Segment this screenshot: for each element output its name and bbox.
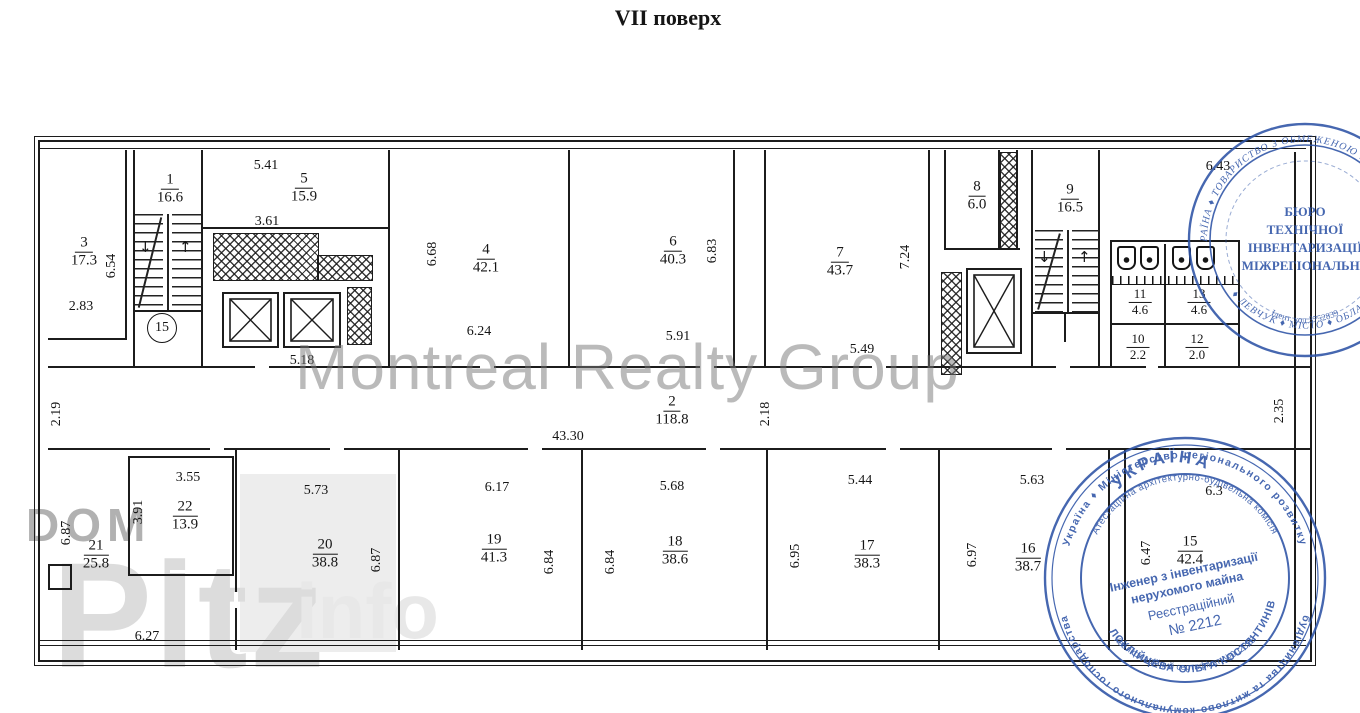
door-opening [330, 448, 344, 451]
shaft-hatch [317, 255, 373, 281]
room-label-19: 1941.3 [481, 532, 507, 567]
room-label-22: 2213.9 [172, 499, 198, 534]
room-label-8: 86.0 [968, 179, 987, 214]
dim-r4-height: 6.68 [425, 242, 441, 267]
arrow-up-icon: ↑ [1078, 250, 1091, 265]
room-number: 4 [477, 242, 495, 260]
room-area: 13.9 [172, 517, 198, 534]
floor-plan-page: VII поверх DOM Pltz info [0, 0, 1360, 713]
door-opening [234, 592, 238, 608]
stair-landing [1064, 312, 1066, 342]
room-label-4: 442.1 [473, 242, 499, 277]
wall [201, 150, 203, 368]
dim-hall-mid: 2.18 [758, 402, 774, 427]
elevator-shaft [966, 268, 1022, 354]
stair-landing [135, 310, 201, 312]
dim-r3-height: 6.54 [104, 254, 120, 279]
door-opening [1056, 366, 1070, 369]
room-area: 16.6 [157, 190, 183, 207]
wall [235, 450, 237, 650]
stair-stringer [1037, 233, 1060, 309]
room-label-18: 1838.6 [662, 534, 688, 569]
arrow-down-icon: ↓ [139, 240, 152, 255]
watermark-center: Montreal Realty Group [295, 330, 960, 404]
room-area: 6.0 [968, 197, 987, 214]
room-label-11: 114.6 [1129, 287, 1152, 317]
wall [1164, 244, 1166, 366]
room-label-3: 317.3 [71, 235, 97, 270]
dim-r5-inner: 3.61 [255, 214, 280, 230]
page-title: VII поверх [615, 5, 722, 31]
room-area: 4.6 [1129, 303, 1152, 318]
door-opening [706, 448, 720, 451]
wall [48, 338, 127, 340]
shaft-hatch [213, 233, 319, 281]
stair-stringer [138, 217, 162, 308]
room-number: 20 [313, 537, 338, 555]
room-label-9: 916.5 [1057, 182, 1083, 217]
room-area: 43.7 [827, 263, 853, 280]
dim-r22-width: 3.55 [176, 470, 201, 486]
dim-r6-height: 6.83 [705, 239, 721, 264]
wall [40, 148, 1306, 149]
room-label-10: 102.2 [1127, 332, 1150, 362]
room-number: 11 [1129, 287, 1152, 303]
door-opening [210, 448, 224, 451]
dim-hall-length: 43.30 [552, 429, 584, 445]
room-area: 42.1 [473, 260, 499, 277]
dim-r17-height: 6.95 [788, 544, 804, 569]
dim-r18-width: 5.68 [660, 479, 685, 495]
room-area: 38.8 [312, 555, 338, 572]
door-opening [528, 448, 542, 451]
dim-r7-height: 7.24 [898, 245, 914, 270]
shaft-hatch [1000, 152, 1018, 250]
room-area: 41.3 [481, 550, 507, 567]
room-area: 15.9 [291, 189, 317, 206]
wall [581, 450, 583, 650]
room-area: 118.8 [655, 412, 688, 429]
staircase: ↓ ↑ [1035, 230, 1099, 312]
dim-r19-height: 6.84 [542, 550, 558, 575]
stamp-line: МІЖРЕГІОНАЛЬНЕ [1242, 258, 1360, 273]
room-number: 22 [173, 499, 198, 517]
stair-divider-line [167, 214, 169, 310]
room-number: 19 [482, 532, 507, 550]
room-label-1: 116.6 [157, 172, 183, 207]
dim-r19-width: 6.17 [485, 480, 510, 496]
room-label-21: 2125.8 [83, 538, 109, 573]
stair-circle-marker: 15 [147, 313, 177, 343]
room-area: 38.6 [662, 552, 688, 569]
room-label-5: 515.9 [291, 171, 317, 206]
dim-r16-height: 6.97 [965, 543, 981, 568]
arrow-up-icon: ↑ [179, 240, 192, 255]
wall [766, 450, 768, 650]
room-number: 5 [295, 171, 313, 189]
room-label-7: 743.7 [827, 245, 853, 280]
room-area: 16.5 [1057, 200, 1083, 217]
stamp-engineer: Україна ♦ Міністерство регіонального роз… [1035, 428, 1335, 713]
stair-landing [1033, 312, 1099, 314]
dim-hall-right: 2.35 [1272, 399, 1288, 424]
wall [1031, 150, 1033, 368]
wall [1110, 242, 1112, 368]
room-number: 18 [663, 534, 688, 552]
stamp-line: ІНВЕНТАРИЗАЦІЇ [1248, 240, 1360, 255]
stamp-line: БЮРО [1284, 204, 1325, 219]
room-label-20: 2038.8 [312, 537, 338, 572]
room-area: 40.3 [660, 252, 686, 269]
room-number: 9 [1061, 182, 1079, 200]
pilaster [48, 564, 72, 590]
dim-r17-width: 5.44 [848, 473, 873, 489]
wall [398, 450, 400, 650]
room-area: 2.2 [1127, 348, 1150, 363]
dim-r5-width: 5.41 [254, 158, 279, 174]
arrow-down-icon: ↓ [1038, 250, 1051, 265]
room-number: 21 [84, 538, 109, 556]
toilet-icon [1117, 246, 1136, 270]
staircase: ↓ ↑ [135, 214, 201, 310]
dim-r22-height: 3.91 [131, 500, 147, 525]
door-opening [255, 366, 269, 369]
stamp-line: ТЕХНІЧНОЇ [1267, 222, 1344, 237]
room-area: 25.8 [83, 556, 109, 573]
dim-r18-height: 6.84 [603, 550, 619, 575]
room-area: 38.3 [854, 556, 880, 573]
door-opening [886, 448, 900, 451]
room-number: 6 [664, 234, 682, 252]
room-number: 17 [855, 538, 880, 556]
dim-r21-width: 6.27 [135, 629, 160, 645]
wall [203, 227, 390, 229]
dim-r21-height: 6.87 [59, 521, 75, 546]
room-label-17: 1738.3 [854, 538, 880, 573]
room-number: 8 [968, 179, 986, 197]
dim-r3-width: 2.83 [69, 299, 94, 315]
toilet-icon [1140, 246, 1159, 270]
stamp-bti: УКРАЇНА ♦ ТОВАРИСТВО З ОБМЕЖЕНОЮ ВІДПОВІ… [1185, 116, 1360, 364]
room-number: 3 [75, 235, 93, 253]
stair-divider-line [1067, 230, 1069, 312]
door-opening [170, 570, 186, 573]
elevator-shaft [222, 292, 279, 348]
wall [125, 150, 127, 340]
room-area: 17.3 [71, 253, 97, 270]
room-number: 10 [1127, 332, 1150, 348]
wall [944, 150, 946, 250]
room-number: 1 [161, 172, 179, 190]
room-label-6: 640.3 [660, 234, 686, 269]
wall [938, 450, 940, 650]
room-number: 7 [831, 245, 849, 263]
dim-r20-height: 6.87 [369, 548, 385, 573]
door-opening [1146, 366, 1158, 369]
dim-r20-width: 5.73 [304, 483, 329, 499]
dim-hall-left: 2.19 [49, 402, 65, 427]
